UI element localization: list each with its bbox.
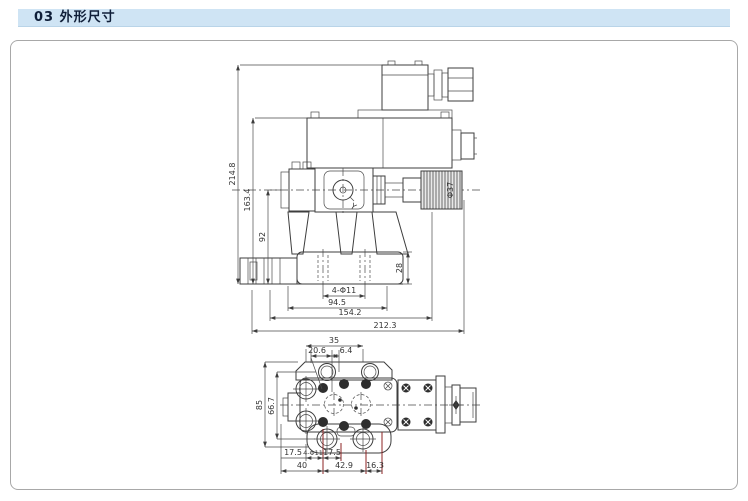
dim-mounting-holes-label: 4-Φ11 [332, 286, 356, 295]
front-legs [288, 212, 408, 254]
dim-knob-diameter-label: Φ37 [446, 182, 455, 198]
front-view: Y Φ37 [228, 61, 480, 334]
top-view: 35 20.6 6.4 85 66.7 [255, 336, 482, 474]
front-subplate [240, 258, 403, 284]
front-flange [358, 110, 452, 118]
front-adjust-knob: Φ37 [373, 171, 462, 209]
dim-bottom-d-label: 42.9 [335, 461, 353, 470]
dim-bottom-b-label: 17.5 [323, 448, 341, 457]
dim-bottom-e-label: 16.3 [366, 461, 384, 470]
dim-base-height-label: 28 [395, 263, 404, 273]
port-y-label: Y [348, 201, 358, 212]
top-connector [449, 385, 476, 425]
dim-width-inner-label: 94.5 [328, 298, 346, 307]
front-pilot-valve [307, 112, 452, 168]
datasheet-page: 03 外形尺寸 [0, 0, 748, 501]
front-dim-base-height: 28 [395, 252, 412, 284]
dim-bottom-a-label: 17.5 [284, 448, 302, 457]
front-main-body: Y [281, 162, 373, 214]
front-pilot-connector [452, 130, 477, 160]
dim-top-offset-b-label: 6.4 [340, 346, 353, 355]
front-dims-bottom: 4-Φ11 94.5 154.2 212.3 [252, 200, 464, 334]
dim-width-overall-label: 212.3 [374, 321, 397, 330]
dim-bottom-c-label: 40 [297, 461, 307, 470]
dim-overall-height-label: 214.8 [228, 163, 237, 186]
dim-pilot-height-label: 163.4 [243, 189, 252, 212]
front-dims-left: 214.8 163.4 92 [228, 65, 382, 284]
dim-bottom-holes-label: 4-Φ11 [303, 449, 323, 457]
dim-top-offset-a-label: 20.6 [308, 346, 326, 355]
top-hidden-ports [325, 392, 371, 416]
dim-top-width-label: 35 [329, 336, 339, 345]
dim-width-mid-label: 154.2 [339, 308, 362, 317]
dim-centerline-height-label: 92 [258, 232, 267, 242]
front-top-solenoid [382, 61, 428, 110]
front-base [297, 249, 403, 287]
dim-left-height-label: 85 [255, 400, 264, 410]
top-solenoid [398, 376, 452, 433]
dim-left-inner-label: 66.7 [267, 397, 276, 415]
front-top-connector [428, 68, 473, 101]
connector-plus-marker-icon [449, 396, 463, 414]
technical-drawing: Y Φ37 [0, 0, 748, 501]
